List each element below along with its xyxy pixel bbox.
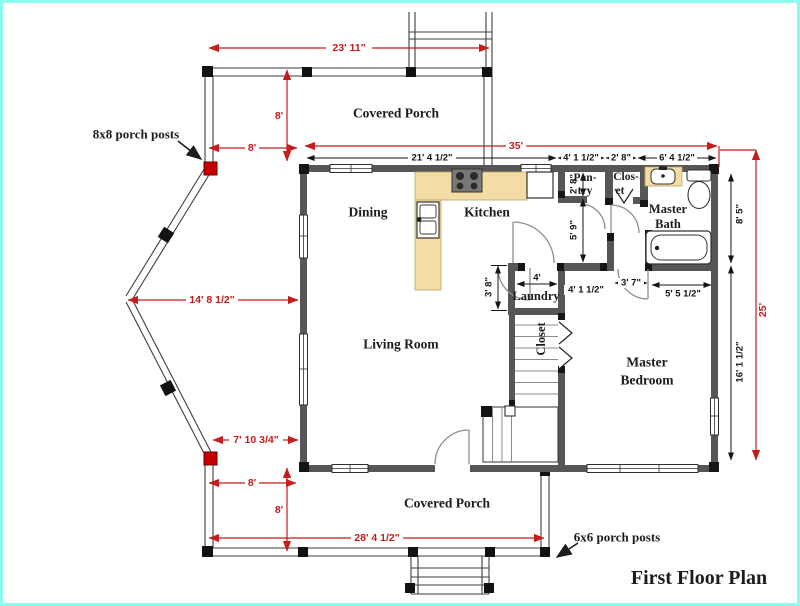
svg-text:8': 8' <box>275 504 283 516</box>
label-6x6-porch-posts: 6x6 porch posts <box>574 530 660 545</box>
label-covered-porch-top: Covered Porch <box>353 106 440 121</box>
label-stair-closet: Closet <box>534 322 548 356</box>
bedroom-right-window <box>711 398 719 435</box>
svg-text:5' 9": 5' 9" <box>569 220 580 240</box>
dim-hall-bottom-seg: 4' 1 1/2" <box>564 285 608 296</box>
svg-text:28' 4 1/2": 28' 4 1/2" <box>354 532 399 544</box>
label-living-room: Living Room <box>363 337 439 352</box>
label-laundry: Laundry <box>512 289 560 303</box>
svg-text:7' 10 3/4": 7' 10 3/4" <box>233 434 278 446</box>
stair-post <box>505 406 515 416</box>
vanity-sink <box>645 167 682 187</box>
svg-text:35': 35' <box>509 140 523 152</box>
faucet-icon <box>659 167 667 171</box>
svg-text:21' 4 1/2": 21' 4 1/2" <box>411 153 452 164</box>
newel-post <box>481 406 492 417</box>
dim-bedroom-door-seg: 3' 7" <box>615 278 647 289</box>
label-8x8-porch-posts: 8x8 porch posts <box>93 127 179 142</box>
svg-text:3' 7": 3' 7" <box>621 278 641 289</box>
living-left-window <box>300 334 308 405</box>
label-master-bath-2: Bath <box>655 217 681 231</box>
dining-top-window <box>330 165 372 173</box>
svg-text:4': 4' <box>533 273 541 284</box>
porch-post-8x8-bottom <box>204 452 217 465</box>
svg-text:8' 5": 8' 5" <box>735 204 746 224</box>
floor-plan-page: 23' 11" 8' 8' 35' 14' 8 1/2" 7' 10 3/4" <box>0 0 800 606</box>
dim-closet-top-width: 2' 8" <box>606 153 636 164</box>
svg-text:25': 25' <box>757 303 769 317</box>
label-master-bedroom-2: Bedroom <box>621 373 675 388</box>
drain-icon <box>655 246 659 250</box>
refrigerator <box>527 172 553 198</box>
label-closet-top-1: Clos- <box>613 171 639 183</box>
label-closet-top-2: et <box>616 185 625 197</box>
svg-text:8': 8' <box>248 142 256 154</box>
svg-text:16' 1 1/2": 16' 1 1/2" <box>735 341 746 382</box>
living-bottom-window <box>332 465 368 473</box>
svg-text:6' 4 1/2": 6' 4 1/2" <box>659 153 695 164</box>
stove <box>452 169 482 192</box>
toilet <box>687 170 711 209</box>
svg-text:4' 1 1/2": 4' 1 1/2" <box>563 153 599 164</box>
page-title: First Floor Plan <box>631 567 767 589</box>
svg-text:8': 8' <box>248 477 256 489</box>
label-master-bedroom-1: Master <box>626 355 667 370</box>
page-background <box>0 0 800 606</box>
label-master-bath-1: Master <box>649 202 688 216</box>
svg-text:23' 11": 23' 11" <box>332 42 365 54</box>
faucet-icon <box>417 217 422 222</box>
label-kitchen: Kitchen <box>464 205 510 220</box>
svg-text:5' 5 1/2": 5' 5 1/2" <box>665 289 701 300</box>
label-pantry-2: try <box>578 185 593 197</box>
label-covered-porch-bottom: Covered Porch <box>404 496 491 511</box>
svg-text:8': 8' <box>275 110 283 122</box>
svg-text:2' 8": 2' 8" <box>611 153 631 164</box>
bathtub <box>646 231 711 264</box>
kitchen-top-window <box>521 165 551 173</box>
svg-text:3' 8": 3' 8" <box>484 277 495 297</box>
label-dining: Dining <box>348 205 387 220</box>
porch-post-8x8-top <box>204 162 217 175</box>
label-pantry-1: Pan- <box>574 172 597 184</box>
svg-text:14' 8 1/2": 14' 8 1/2" <box>189 294 234 306</box>
floor-plan: 23' 11" 8' 8' 35' 14' 8 1/2" 7' 10 3/4" <box>0 0 800 606</box>
dining-left-window <box>300 215 308 258</box>
kitchen-sink <box>417 202 439 238</box>
svg-text:4' 1 1/2": 4' 1 1/2" <box>568 285 604 296</box>
dim-hall-top-width: 4' 1 1/2" <box>558 153 604 164</box>
bedroom-bottom-window <box>587 465 698 473</box>
